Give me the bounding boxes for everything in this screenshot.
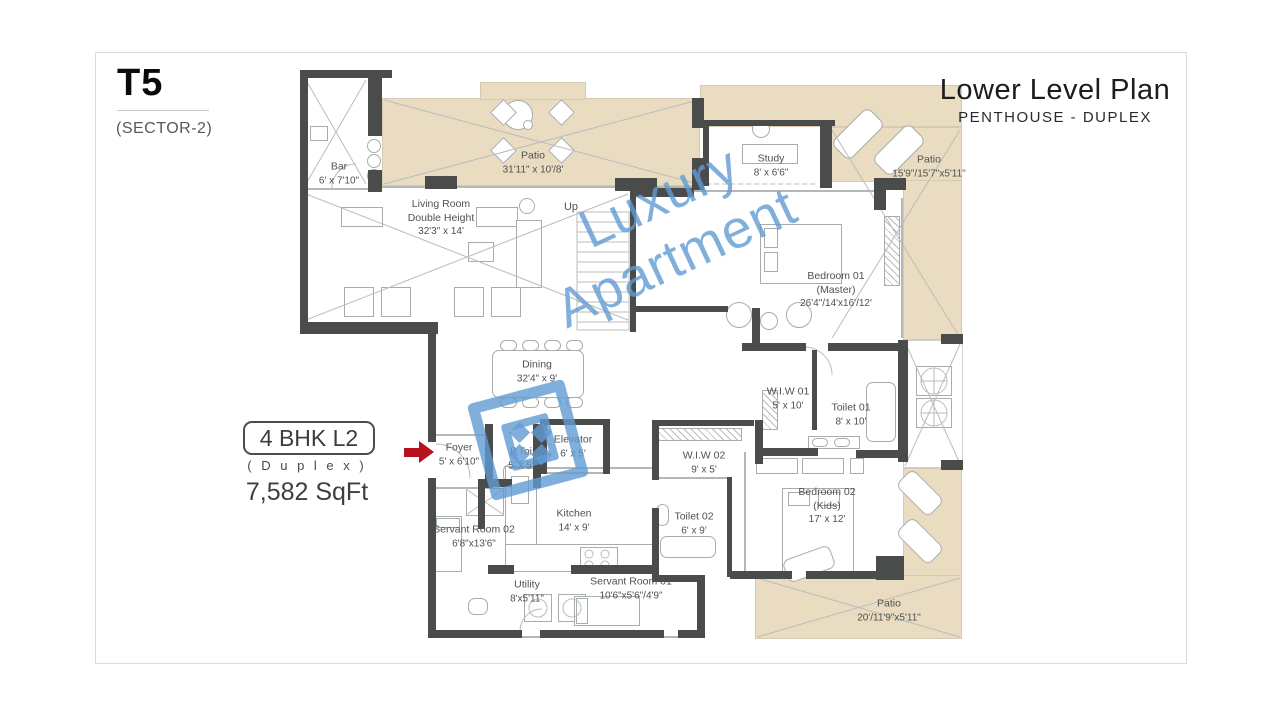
wall [752, 308, 760, 348]
unit-type-badge: 4 BHK L2 [243, 421, 375, 455]
wall [806, 571, 880, 579]
room-name: Study [754, 153, 789, 167]
deck-table [916, 398, 952, 428]
room-label-foyer: Foyer5' x 6'10" [439, 442, 479, 469]
wall [571, 565, 657, 574]
room-name: Bar [319, 161, 359, 175]
wall [874, 178, 886, 210]
pillow [576, 598, 588, 624]
room-label-bedroom-02: Bedroom 02(Kids)17' x 12' [798, 486, 855, 526]
wall [703, 120, 709, 186]
bar-stool [367, 139, 381, 153]
wall [428, 630, 522, 638]
wall [652, 420, 659, 480]
room-dimensions: 17' x 12' [798, 513, 855, 526]
entry-arrow-icon [419, 441, 434, 463]
room-label-p-toi: P.Toi5' x 5' [508, 446, 534, 473]
dining-chair [500, 340, 517, 351]
wall [697, 575, 705, 638]
patio-area [480, 82, 586, 100]
sofa [476, 207, 518, 227]
room-label-servant-room-01: Servant Room 0110'6"x5'6"/4'9" [590, 576, 672, 603]
room-dimensions: 6' x 7'10" [319, 174, 359, 187]
room-label-toilet-01: Toilet 018' x 10' [831, 402, 870, 429]
wall [630, 306, 728, 312]
wall [425, 176, 457, 189]
room-dimensions: 14' x 9' [556, 521, 591, 534]
tower-name: T5 [117, 62, 163, 105]
wall [652, 420, 754, 426]
room-dimensions: 26'4"/14'x16'/12' [800, 297, 872, 310]
room-dimensions: 9' x 5' [683, 463, 726, 476]
wall [727, 477, 732, 577]
armchair [726, 302, 752, 328]
dining-chair [544, 340, 561, 351]
wall [540, 419, 610, 425]
unit-subtype-label: ( D u p l e x ) [233, 458, 381, 473]
side-table [519, 198, 535, 214]
wall [488, 565, 514, 574]
wall [636, 188, 694, 197]
sofa [341, 207, 383, 227]
room-dimensions: 32'3" x 14' [408, 225, 475, 238]
wardrobe [850, 458, 864, 474]
room-dimensions: 8'x5'11" [510, 592, 544, 605]
wall [428, 478, 436, 638]
wardrobe [658, 428, 742, 441]
room-dimensions: 6'8"x13'6" [433, 537, 515, 550]
room-dimensions: 10'6"x5'6"/4'9" [590, 589, 672, 602]
wall [898, 340, 908, 462]
wall [755, 420, 763, 464]
closet [466, 488, 504, 516]
dining-chair [544, 397, 561, 408]
room-name2: (Master) [800, 284, 872, 298]
utility-sink [468, 598, 488, 615]
stairs-up-label: Up [564, 201, 578, 213]
wall [941, 460, 963, 470]
room-dimensions: 5' x 10' [767, 399, 810, 412]
wall [368, 74, 382, 136]
room-name: Servant Room 01 [590, 576, 672, 590]
wall [703, 120, 835, 126]
thin-wall [744, 452, 746, 574]
wall [742, 343, 806, 351]
room-name: Foyer [439, 442, 479, 456]
room-dimensions: 6' x 5' [554, 447, 593, 460]
unit-area-label: 7,582 SqFt [227, 478, 387, 507]
room-name: W.I.W 02 [683, 450, 726, 464]
room-name: Dining [517, 359, 557, 373]
room-dimensions: 32'4" x 9' [517, 372, 557, 385]
armchair [344, 287, 374, 317]
dining-chair [522, 397, 539, 408]
room-dimensions: 6' x 9' [674, 524, 713, 537]
coffee-table [468, 242, 494, 262]
room-name: Servant Room 02 [433, 524, 515, 538]
thin-wall [655, 477, 731, 479]
room-label-servant-room-02: Servant Room 026'8"x13'6" [433, 524, 515, 551]
armchair [454, 287, 484, 317]
pillow [764, 252, 778, 272]
room-label-utility: Utility8'x5'11" [510, 579, 544, 606]
room-name: Toilet 02 [674, 511, 713, 525]
plan-subtitle: PENTHOUSE - DUPLEX [905, 109, 1205, 126]
wall [941, 334, 963, 344]
room-name: Bedroom 02 [798, 486, 855, 500]
room-name: Kitchen [556, 508, 591, 522]
room-label-patio-right: Patio15'9"/15'7"x5'11" [892, 154, 965, 181]
room-label-toilet-02: Toilet 026' x 9' [674, 511, 713, 538]
pillow [764, 228, 778, 248]
room-name: Living Room [408, 198, 475, 212]
room-name2: (Kids) [798, 500, 855, 514]
wall [758, 448, 818, 456]
bathtub [660, 536, 716, 558]
dining-chair [566, 340, 583, 351]
room-name: Bedroom 01 [800, 270, 872, 284]
thin-wall [430, 434, 490, 436]
room-name: P.Toi [508, 446, 534, 460]
wall [540, 630, 664, 638]
wall [820, 120, 832, 188]
room-name: Patio [892, 154, 965, 168]
room-label-wiw-02: W.I.W 029' x 5' [683, 450, 726, 477]
room-name: Utility [510, 579, 544, 593]
dining-chair [566, 397, 583, 408]
wall [368, 170, 382, 192]
room-name: Toilet 01 [831, 402, 870, 416]
wall [876, 556, 904, 580]
wall [300, 70, 308, 332]
wardrobe [802, 458, 844, 474]
dining-chair [522, 340, 539, 351]
patio-area [903, 180, 962, 340]
room-name: Patio [503, 150, 564, 164]
room-label-kitchen: Kitchen14' x 9' [556, 508, 591, 535]
side-table [760, 312, 778, 330]
room-label-bedroom-01: Bedroom 01(Master)26'4"/14'x16'/12' [800, 270, 872, 310]
plan-title: Lower Level Plan [905, 74, 1205, 107]
armchair [491, 287, 521, 317]
armchair [381, 287, 411, 317]
deck-table [916, 366, 952, 396]
thin-wall [543, 472, 607, 474]
room-dimensions: 15'9"/15'7"x5'11" [892, 167, 965, 180]
room-dimensions: 8' x 6'6" [754, 166, 789, 179]
room-label-wiw-01: W.I.W 015' x 10' [767, 386, 810, 413]
wall [428, 334, 436, 442]
kitchen-sink [511, 476, 529, 504]
wall [485, 424, 493, 488]
wall [603, 419, 610, 474]
wall [812, 350, 817, 430]
room-label-living-room: Living RoomDouble Height32'3" x 14' [408, 198, 475, 238]
room-label-dining: Dining32'4" x 9' [517, 359, 557, 386]
room-name: Patio [857, 598, 921, 612]
entry-arrow-icon [404, 448, 420, 457]
wall [730, 571, 792, 579]
wardrobe [884, 216, 900, 286]
wash-basin [812, 438, 828, 447]
thin-wall [306, 188, 368, 190]
room-name2: Double Height [408, 212, 475, 226]
wall [856, 450, 904, 458]
wall [828, 343, 906, 351]
room-dimensions: 5' x 6'10" [439, 455, 479, 468]
room-name: W.I.W 01 [767, 386, 810, 400]
room-label-patio-top: Patio31'11" x 10'/8' [503, 150, 564, 177]
wall [300, 322, 438, 334]
room-dimensions: 31'11" x 10'/8' [503, 163, 564, 176]
bar-stool [367, 154, 381, 168]
patio-table [523, 120, 533, 130]
wall [540, 419, 547, 474]
divider-line [117, 110, 209, 111]
room-label-bar: Bar6' x 7'10" [319, 161, 359, 188]
room-name: Elevator [554, 434, 593, 448]
room-label-patio-bottom: Patio20'/11'9"x5'11" [857, 598, 921, 625]
wash-basin [834, 438, 850, 447]
room-label-elevator: Elevator6' x 5' [554, 434, 593, 461]
floor-plan-page: T5 (SECTOR-2) Lower Level Plan PENTHOUSE… [0, 0, 1280, 720]
room-dimensions: 5' x 5' [508, 459, 534, 472]
room-dimensions: 8' x 10' [831, 415, 870, 428]
dining-chair [500, 397, 517, 408]
room-dimensions: 20'/11'9"x5'11" [857, 611, 921, 624]
sofa [516, 220, 542, 288]
thin-wall [901, 198, 903, 338]
plan-title-block: Lower Level Plan PENTHOUSE - DUPLEX [905, 74, 1205, 126]
room-label-study: Study8' x 6'6" [754, 153, 789, 180]
sector-label: (SECTOR-2) [116, 120, 212, 138]
bar-sink [310, 126, 328, 141]
